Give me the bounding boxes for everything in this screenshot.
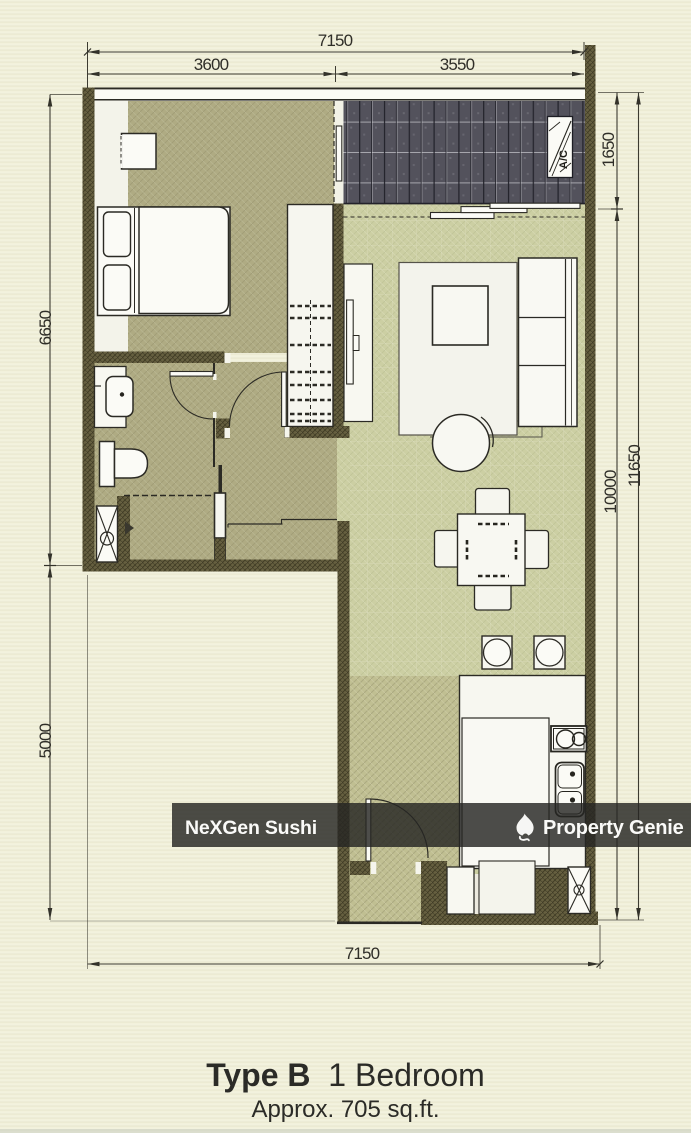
- svg-text:7150: 7150: [345, 944, 380, 963]
- svg-text:3600: 3600: [194, 55, 229, 74]
- svg-text:6650: 6650: [36, 310, 55, 345]
- svg-text:11650: 11650: [625, 445, 644, 487]
- svg-text:10000: 10000: [601, 470, 620, 514]
- svg-text:1650: 1650: [599, 132, 618, 167]
- svg-text:3550: 3550: [440, 55, 475, 74]
- svg-text:A/C: A/C: [558, 150, 570, 169]
- svg-text:5000: 5000: [36, 723, 55, 758]
- svg-text:7150: 7150: [318, 31, 353, 50]
